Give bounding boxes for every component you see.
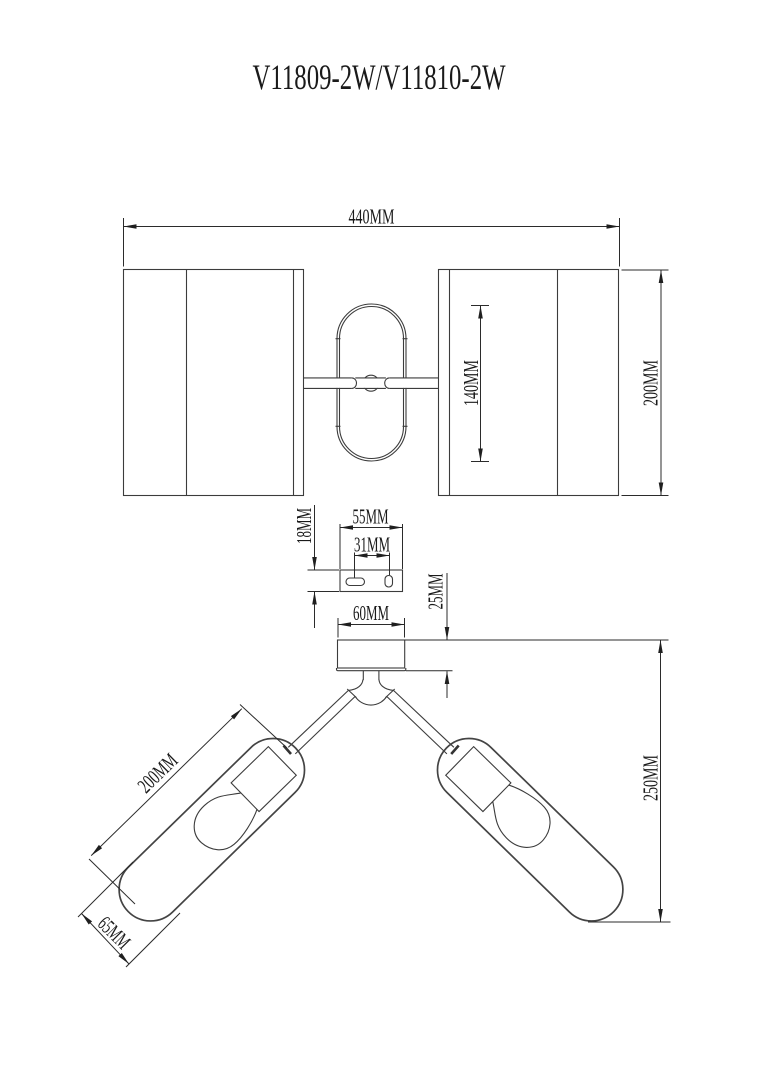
svg-text:250MM: 250MM <box>639 755 663 801</box>
svg-text:V11809-2W/V11810-2W: V11809-2W/V11810-2W <box>253 57 506 97</box>
svg-text:55MM: 55MM <box>353 505 389 529</box>
svg-text:25MM: 25MM <box>424 573 448 609</box>
svg-text:200MM: 200MM <box>639 360 663 406</box>
svg-text:31MM: 31MM <box>354 533 390 557</box>
svg-text:140MM: 140MM <box>459 360 483 406</box>
svg-text:60MM: 60MM <box>353 601 389 625</box>
svg-text:18MM: 18MM <box>292 508 316 544</box>
svg-text:440MM: 440MM <box>349 205 395 229</box>
